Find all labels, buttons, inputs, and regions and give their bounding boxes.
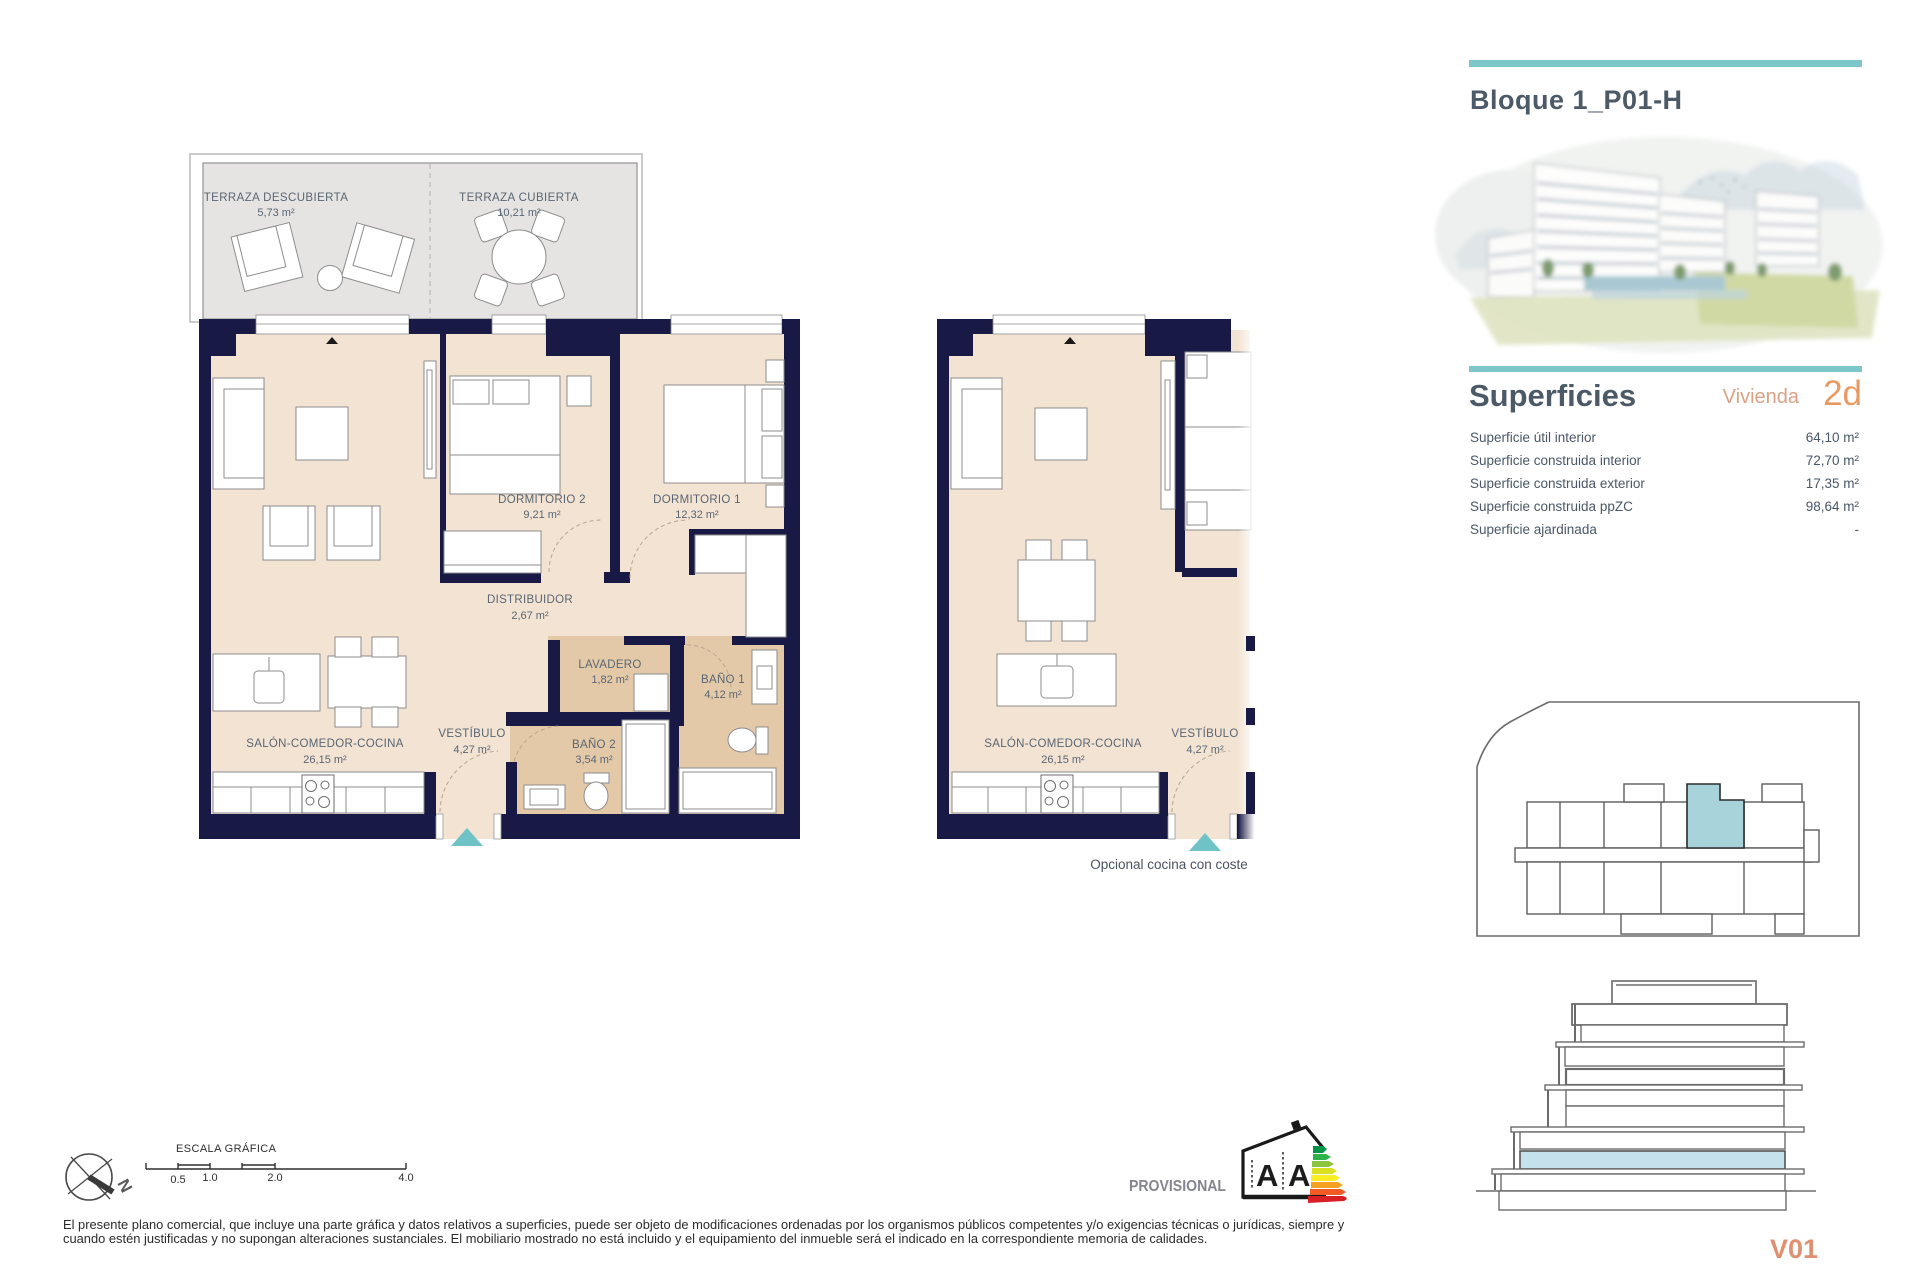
svg-text:3,54 m²: 3,54 m² (575, 754, 613, 766)
svg-text:4,27 m²: 4,27 m² (1186, 744, 1224, 756)
svg-text:1,82 m²: 1,82 m² (591, 674, 629, 686)
svg-text:A: A (1256, 1158, 1278, 1193)
svg-text:2d: 2d (1823, 374, 1862, 413)
svg-text:LAVADERO: LAVADERO (578, 659, 641, 671)
svg-text:El presente plano comercial, q: El presente plano comercial, que incluye… (63, 1217, 1345, 1232)
svg-text:12,32 m²: 12,32 m² (675, 509, 719, 521)
svg-text:17,35 m²: 17,35 m² (1806, 476, 1860, 491)
svg-text:PROVISIONAL: PROVISIONAL (1129, 1178, 1226, 1195)
svg-text:9,21 m²: 9,21 m² (523, 509, 561, 521)
svg-text:N: N (113, 1176, 136, 1196)
svg-text:BAÑO 1: BAÑO 1 (701, 673, 745, 686)
svg-text:SALÓN-COMEDOR-COCINA: SALÓN-COMEDOR-COCINA (984, 737, 1141, 750)
svg-text:DISTRIBUIDOR: DISTRIBUIDOR (487, 594, 573, 606)
svg-text:Superficie construida interior: Superficie construida interior (1470, 453, 1642, 468)
svg-text:VESTÍBULO: VESTÍBULO (438, 727, 505, 740)
svg-text:4,27 m²: 4,27 m² (453, 744, 491, 756)
svg-text:26,15 m²: 26,15 m² (303, 754, 347, 766)
svg-text:TERRAZA DESCUBIERTA: TERRAZA DESCUBIERTA (204, 192, 349, 204)
svg-text:Superficie construida ppZC: Superficie construida ppZC (1470, 499, 1633, 514)
svg-text:Vivienda: Vivienda (1723, 386, 1800, 408)
svg-text:2.0: 2.0 (267, 1172, 282, 1184)
svg-text:Superficie ajardinada: Superficie ajardinada (1470, 522, 1597, 537)
svg-text:DORMITORIO 2: DORMITORIO 2 (498, 494, 586, 506)
svg-text:26,15 m²: 26,15 m² (1041, 754, 1085, 766)
svg-text:BAÑO 2: BAÑO 2 (572, 738, 616, 751)
svg-text:Superficie útil interior: Superficie útil interior (1470, 430, 1597, 445)
svg-text:Superficie construida exterior: Superficie construida exterior (1470, 476, 1645, 491)
svg-text:10,21 m²: 10,21 m² (497, 207, 541, 219)
svg-text:Opcional cocina con coste: Opcional cocina con coste (1090, 857, 1248, 872)
svg-text:Superficies: Superficies (1469, 378, 1636, 413)
svg-text:4.0: 4.0 (398, 1172, 413, 1184)
svg-text:-: - (1855, 522, 1860, 537)
svg-text:V01: V01 (1770, 1234, 1818, 1264)
svg-text:2,67 m²: 2,67 m² (511, 610, 549, 622)
svg-text:64,10 m²: 64,10 m² (1806, 430, 1860, 445)
svg-text:VESTÍBULO: VESTÍBULO (1171, 727, 1238, 740)
svg-text:0.5: 0.5 (170, 1174, 185, 1186)
svg-text:A: A (1288, 1158, 1310, 1193)
svg-text:cuando estén justificadas y no: cuando estén justificadas y no supongan … (63, 1231, 1207, 1246)
svg-text:1.0: 1.0 (202, 1172, 217, 1184)
svg-text:ESCALA GRÁFICA: ESCALA GRÁFICA (176, 1142, 277, 1155)
svg-text:TERRAZA CUBIERTA: TERRAZA CUBIERTA (459, 192, 579, 204)
svg-text:Bloque 1_P01-H: Bloque 1_P01-H (1470, 85, 1683, 115)
svg-text:SALÓN-COMEDOR-COCINA: SALÓN-COMEDOR-COCINA (246, 737, 403, 750)
svg-text:98,64 m²: 98,64 m² (1806, 499, 1860, 514)
svg-text:72,70 m²: 72,70 m² (1806, 453, 1860, 468)
svg-text:4,12 m²: 4,12 m² (704, 689, 742, 701)
svg-text:5,73 m²: 5,73 m² (257, 207, 295, 219)
svg-text:DORMITORIO 1: DORMITORIO 1 (653, 494, 741, 506)
